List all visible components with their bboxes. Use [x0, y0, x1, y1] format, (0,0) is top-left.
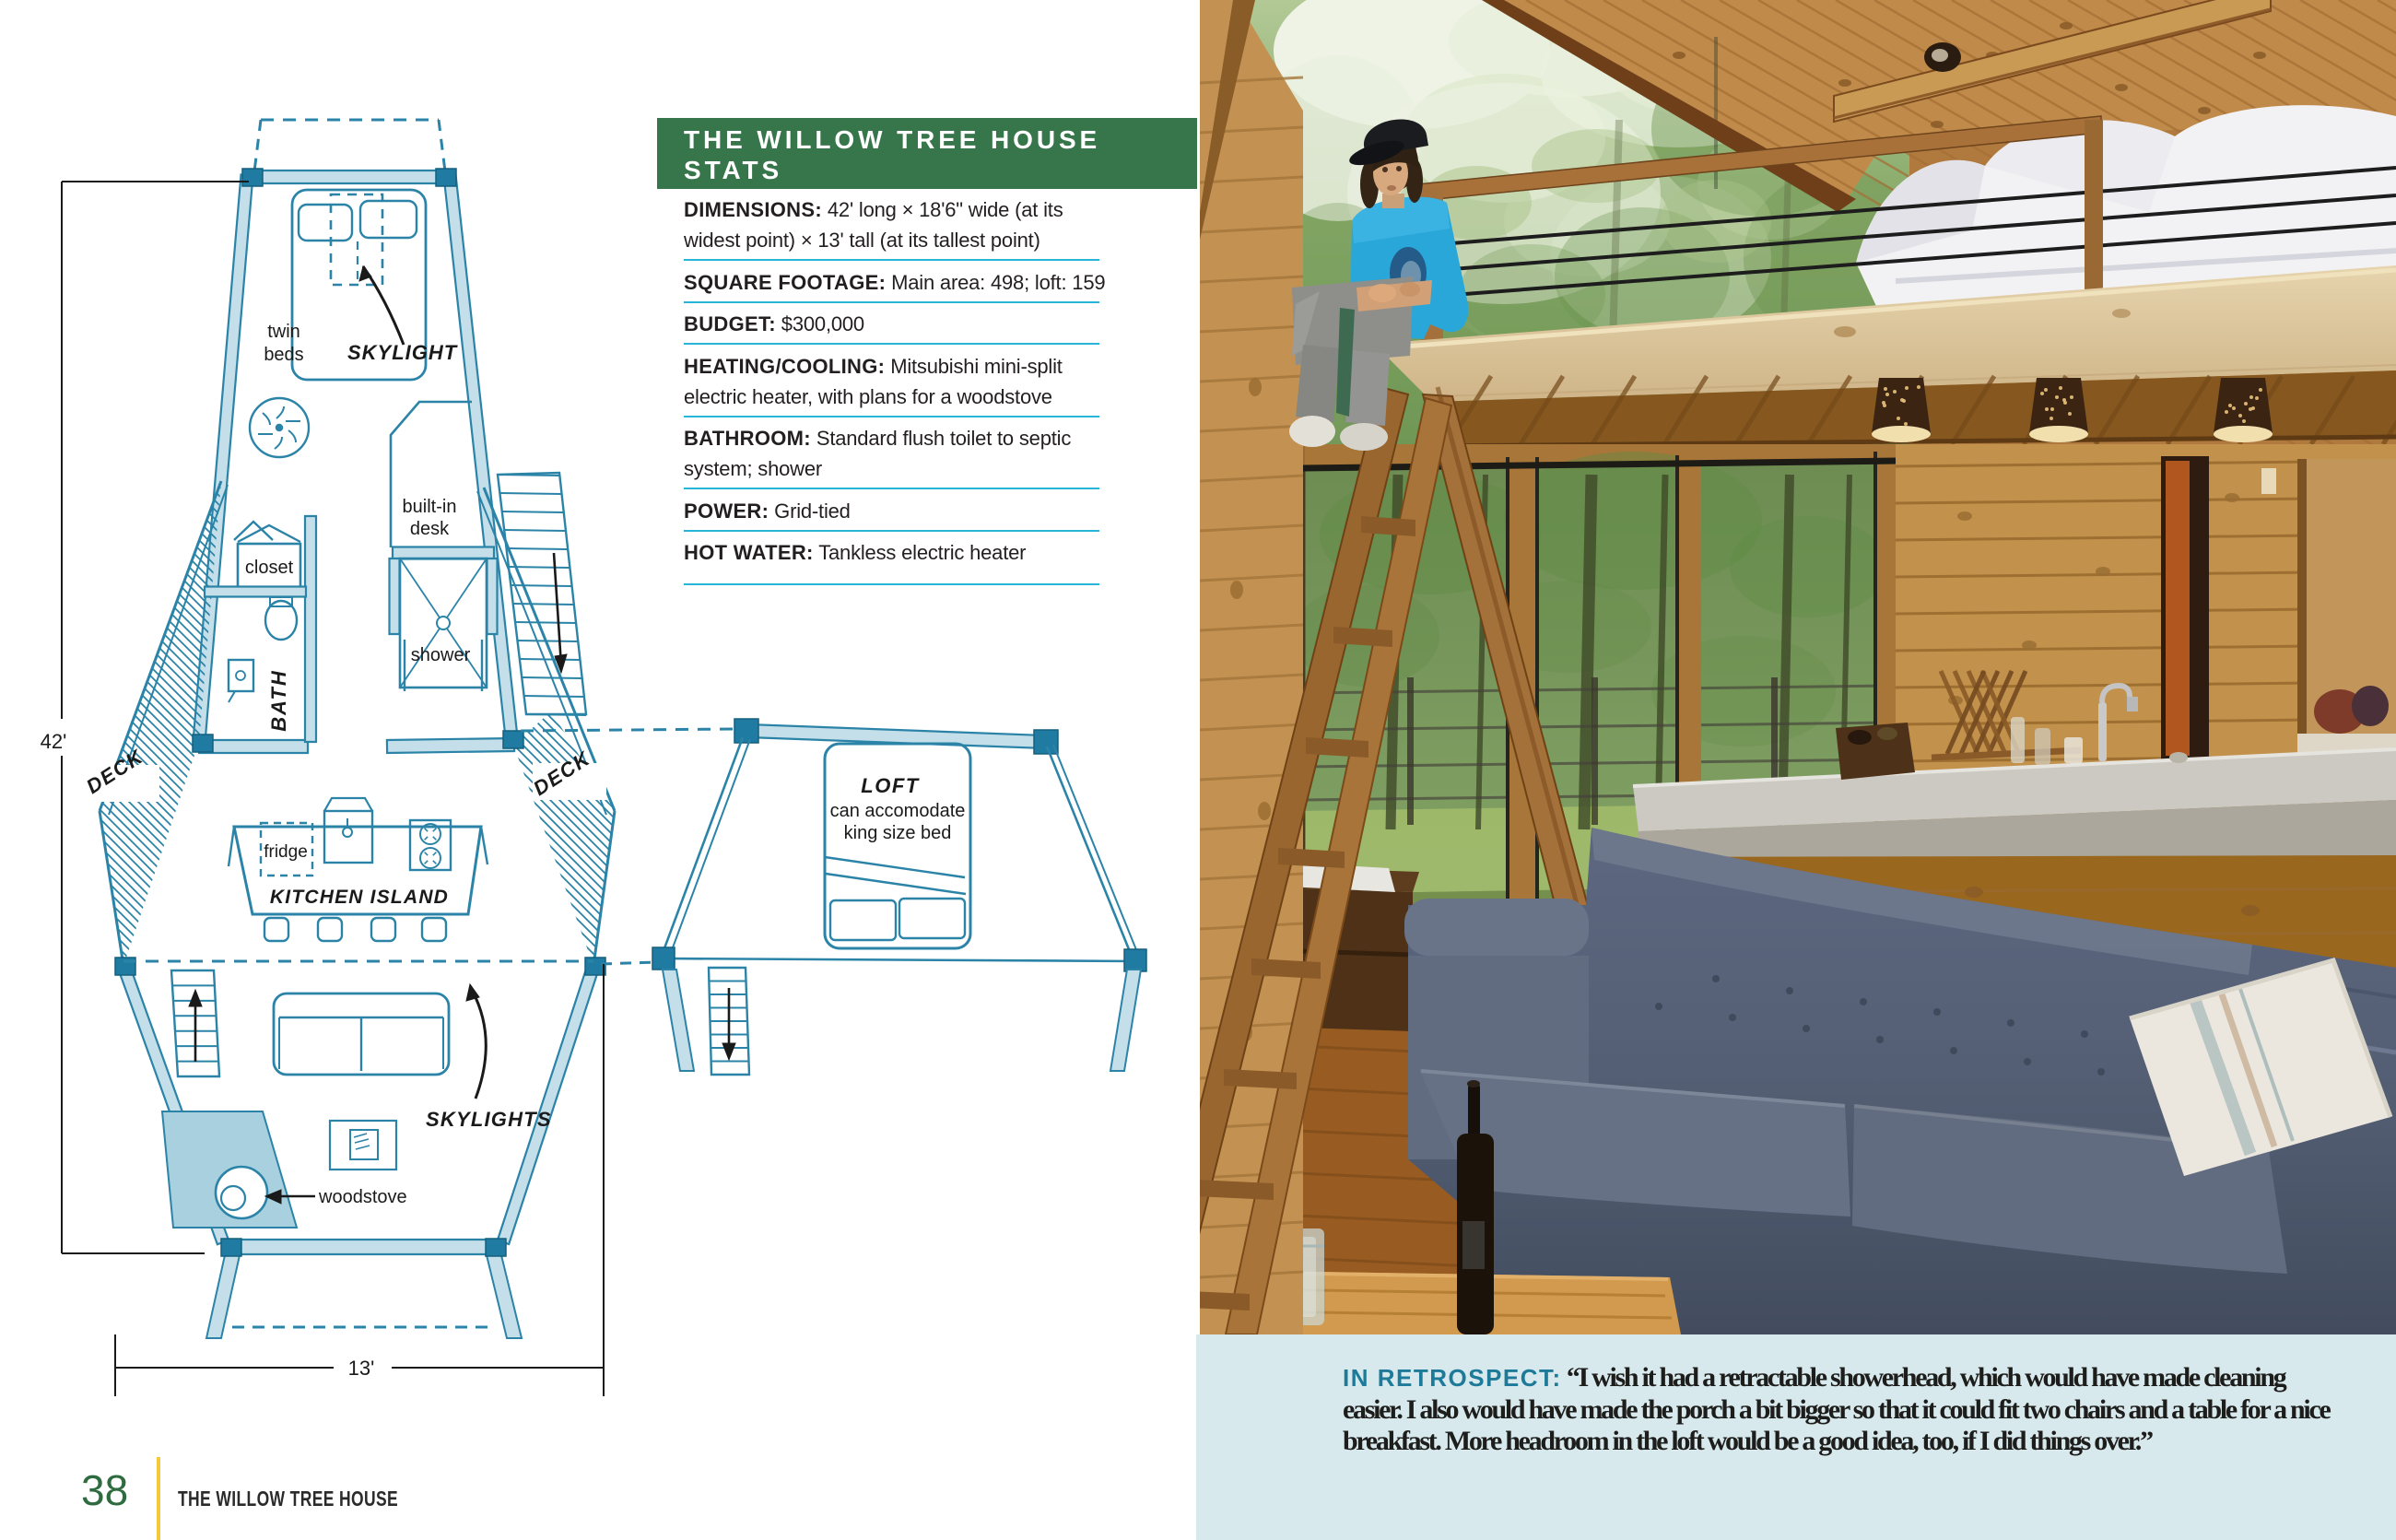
svg-text:woodstove: woodstove [318, 1187, 407, 1207]
svg-text:closet: closet [245, 558, 294, 578]
svg-text:twin: twin [267, 322, 300, 342]
svg-text:can accomodate: can accomodate [830, 801, 966, 821]
svg-text:LOFT: LOFT [861, 774, 919, 797]
svg-text:SKYLIGHT: SKYLIGHT [347, 341, 458, 364]
svg-text:13': 13' [348, 1357, 375, 1380]
svg-text:fridge: fridge [264, 842, 308, 862]
svg-text:shower: shower [411, 645, 471, 665]
svg-text:BATH: BATH [267, 669, 290, 731]
svg-text:built-in: built-in [403, 497, 457, 517]
svg-text:desk: desk [410, 519, 450, 539]
svg-text:beds: beds [264, 345, 303, 365]
svg-text:42': 42' [41, 730, 67, 753]
svg-text:SKYLIGHTS: SKYLIGHTS [426, 1108, 552, 1131]
svg-text:KITCHEN ISLAND: KITCHEN ISLAND [270, 887, 449, 908]
svg-text:king size bed: king size bed [844, 823, 952, 843]
